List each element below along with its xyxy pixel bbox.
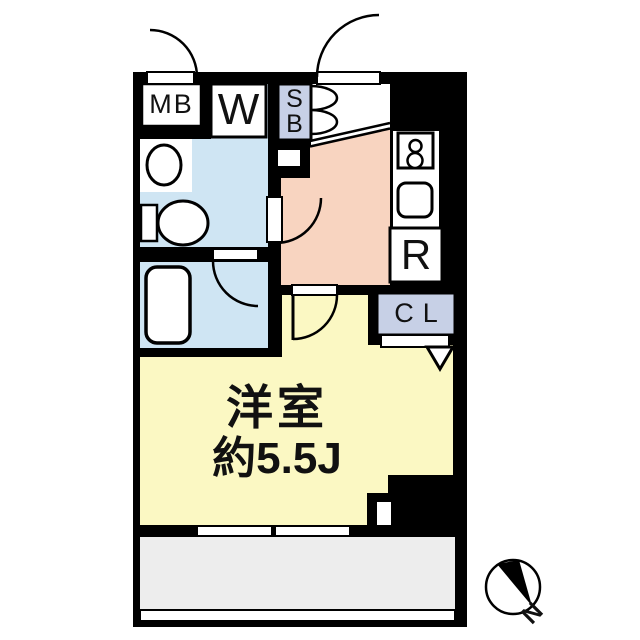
toilet-tank: [141, 205, 157, 241]
closet-door: [381, 335, 449, 347]
washbasin-bowl: [147, 145, 181, 185]
meter-box-door: [147, 72, 194, 84]
sink-icon: [398, 183, 432, 217]
pipe-space-niche: [377, 502, 391, 525]
entrance-door: [317, 72, 380, 84]
room-name-label: 洋室: [137, 383, 417, 433]
room-size-label: 約5.5J: [137, 434, 417, 484]
floor-plan: MB W SB R CL 洋室 約5.5J N: [0, 0, 640, 640]
room-door-opening: [292, 285, 337, 295]
stove-burner-icon: [410, 140, 422, 152]
closet-label: CL: [377, 293, 455, 335]
balcony-floor: [140, 537, 455, 610]
floor-plan-drawing: [0, 0, 640, 640]
wall-niche: [278, 150, 300, 166]
shoe-box-label-b: B: [286, 112, 303, 138]
washer-label: W: [211, 84, 266, 137]
washroom-door-leaf: [267, 197, 282, 242]
window-sash: [197, 526, 272, 536]
bathroom-door-leaf: [213, 249, 258, 260]
refrigerator-label: R: [390, 228, 442, 282]
stove-burner-icon: [408, 153, 423, 168]
balcony-railing: [140, 610, 455, 621]
entrance-door-arc: [317, 15, 379, 77]
meter-box-label: MB: [142, 84, 201, 126]
shoe-box-label-s: S: [286, 87, 303, 113]
meter-box-door-arc: [150, 30, 197, 77]
bathtub: [146, 267, 190, 343]
toilet-bowl: [158, 201, 208, 245]
window-sash: [275, 526, 350, 536]
shoe-box-label: SB: [278, 84, 311, 140]
